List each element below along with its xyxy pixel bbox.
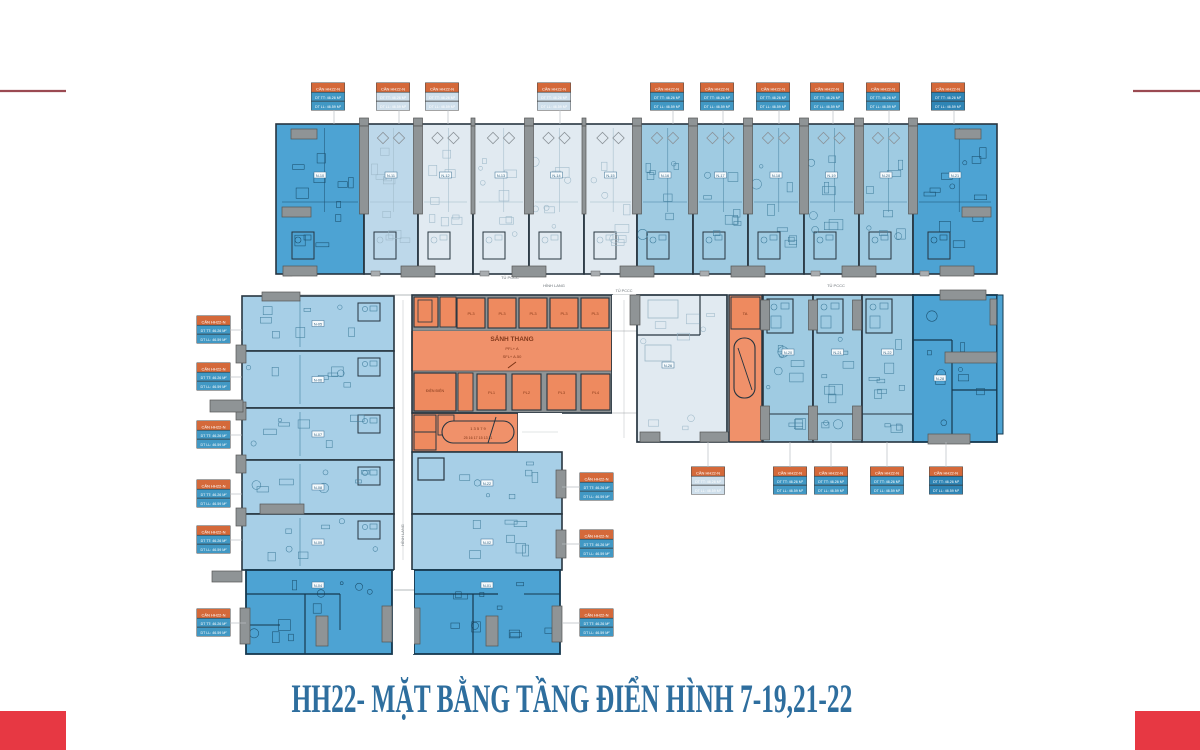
svg-text:DT LL: 46.59 M²: DT LL: 46.59 M² [584,631,611,635]
svg-text:DT TT: 46.26 M²: DT TT: 46.26 M² [201,376,228,380]
svg-text:DT TT: 46.26 M²: DT TT: 46.26 M² [201,434,228,438]
svg-text:DT TT: 46.26 M²: DT TT: 46.26 M² [429,96,456,100]
svg-text:N-19: N-19 [827,174,835,178]
svg-text:N-16: N-16 [661,174,669,178]
svg-text:DT LL: 46.59 M²: DT LL: 46.59 M² [760,105,787,109]
svg-text:DT TT: 46.26 M²: DT TT: 46.26 M² [201,622,228,626]
svg-text:PL3: PL3 [529,311,537,316]
svg-text:DT LL: 46.59 M²: DT LL: 46.59 M² [380,105,407,109]
svg-text:DT LL: 46.59 M²: DT LL: 46.59 M² [814,105,841,109]
svg-text:25 16 17 15 13 11: 25 16 17 15 13 11 [464,436,493,440]
svg-text:DT TT: 46.26 M²: DT TT: 46.26 M² [201,539,228,543]
svg-text:CĂN HH22-N: CĂN HH22-N [871,86,895,91]
svg-text:DT TT: 46.26 M²: DT TT: 46.26 M² [870,96,897,100]
svg-text:DT TT: 46.26 M²: DT TT: 46.26 M² [814,96,841,100]
svg-text:DT TT: 46.26 M²: DT TT: 46.26 M² [201,493,228,497]
svg-text:DT LL: 46.59 M²: DT LL: 46.59 M² [695,489,722,493]
svg-text:DT TT: 46.26 M²: DT TT: 46.26 M² [818,480,845,484]
svg-text:CĂN HH22-N: CĂN HH22-N [201,612,225,617]
svg-text:DT TT: 46.26 M²: DT TT: 46.26 M² [201,329,228,333]
svg-text:PL1: PL1 [488,390,496,395]
svg-text:DT LL: 46.59 M²: DT LL: 46.59 M² [933,489,960,493]
svg-text:CĂN HH22-N: CĂN HH22-N [819,470,843,475]
svg-text:HÌNH LANG: HÌNH LANG [400,524,405,546]
svg-text:DT TT: 46.26 M²: DT TT: 46.26 M² [541,96,568,100]
svg-text:DT LL: 46.59 M²: DT LL: 46.59 M² [429,105,456,109]
svg-text:DT TT: 46.26 M²: DT TT: 46.26 M² [760,96,787,100]
svg-text:DT TT: 46.26 M²: DT TT: 46.26 M² [777,480,804,484]
svg-text:DT LL: 46.59 M²: DT LL: 46.59 M² [704,105,731,109]
svg-text:HH22- MẶT BẰNG TẦNG ĐIỂN HÌNH: HH22- MẶT BẰNG TẦNG ĐIỂN HÌNH 7-19,21-22 [292,676,853,721]
svg-text:DT LL: 46.59 M²: DT LL: 46.59 M² [874,489,901,493]
svg-text:DT TT: 46.26 M²: DT TT: 46.26 M² [380,96,407,100]
svg-text:PL4: PL4 [592,390,600,395]
svg-text:CĂN HH22-N: CĂN HH22-N [542,86,566,91]
svg-text:SẢNH THANG: SẢNH THANG [490,334,533,343]
svg-text:N-14: N-14 [552,174,560,178]
svg-text:DT TT: 46.26 M²: DT TT: 46.26 M² [654,96,681,100]
svg-text:CĂN HH22-N: CĂN HH22-N [696,470,720,475]
svg-text:CĂN HH22-N: CĂN HH22-N [584,533,608,538]
svg-text:DT TT: 46.26 M²: DT TT: 46.26 M² [584,486,611,490]
svg-text:CĂN HH22-N: CĂN HH22-N [584,476,608,481]
svg-text:N-17: N-17 [716,174,724,178]
svg-text:N-11: N-11 [387,174,395,178]
svg-text:N-12: N-12 [441,174,449,178]
svg-text:CĂN HH22-N: CĂN HH22-N [381,86,405,91]
svg-text:PL3: PL3 [560,311,568,316]
svg-text:N-01: N-01 [483,584,491,588]
svg-text:N-05: N-05 [314,322,322,326]
svg-text:N-13: N-13 [497,174,505,178]
svg-text:CĂN HH22-N: CĂN HH22-N [705,86,729,91]
svg-text:N-18: N-18 [772,174,780,178]
svg-text:N-07: N-07 [314,433,322,437]
svg-text:DT LL: 46.59 M²: DT LL: 46.59 M² [201,385,228,389]
svg-text:DT LL: 46.59 M²: DT LL: 46.59 M² [777,489,804,493]
svg-text:N-21: N-21 [833,351,841,355]
svg-text:CĂN HH22-N: CĂN HH22-N [201,366,225,371]
svg-text:DT LL: 46.59 M²: DT LL: 46.59 M² [935,105,962,109]
svg-text:DT TT: 46.26 M²: DT TT: 46.26 M² [584,543,611,547]
svg-text:CĂN HH22-N: CĂN HH22-N [815,86,839,91]
svg-text:DT TT: 46.26 M²: DT TT: 46.26 M² [933,480,960,484]
svg-text:DT TT: 46.26 M²: DT TT: 46.26 M² [315,96,342,100]
svg-text:N-06: N-06 [314,378,322,382]
svg-text:CĂN HH22-N: CĂN HH22-N [655,86,679,91]
svg-text:N-21: N-21 [951,174,959,178]
svg-text:CĂN HH22-N: CĂN HH22-N [778,470,802,475]
svg-text:N-08: N-08 [314,486,322,490]
svg-text:N-22: N-22 [483,482,491,486]
svg-text:DT LL: 46.59 M²: DT LL: 46.59 M² [201,548,228,552]
svg-text:ĐIỆN ĐIỆN: ĐIỆN ĐIỆN [426,388,445,393]
svg-text:DT LL: 46.59 M²: DT LL: 46.59 M² [584,552,611,556]
svg-text:DT LL: 46.59 M²: DT LL: 46.59 M² [201,443,228,447]
svg-text:TA: TA [743,311,748,316]
svg-text:HÌNH LANG: HÌNH LANG [543,283,565,288]
svg-text:N-04: N-04 [314,584,322,588]
svg-text:DT LL: 46.59 M²: DT LL: 46.59 M² [315,105,342,109]
svg-text:1 3 5 7 9: 1 3 5 7 9 [470,426,486,431]
svg-text:DT LL: 46.59 M²: DT LL: 46.59 M² [201,631,228,635]
svg-text:DT TT: 46.26 M²: DT TT: 46.26 M² [874,480,901,484]
svg-text:PFL+ A: PFL+ A [505,346,519,351]
svg-text:TỦ PCCC: TỦ PCCC [616,288,633,293]
svg-text:PL3: PL3 [558,390,566,395]
svg-text:PL3: PL3 [591,311,599,316]
svg-text:DT LL: 46.59 M²: DT LL: 46.59 M² [201,338,228,342]
svg-text:DT LL: 46.59 M²: DT LL: 46.59 M² [201,502,228,506]
svg-text:N-09: N-09 [314,541,322,545]
svg-text:N-22: N-22 [883,351,891,355]
svg-text:SFL+ A.50: SFL+ A.50 [503,354,523,359]
svg-text:DT LL: 46.59 M²: DT LL: 46.59 M² [654,105,681,109]
svg-text:N-15: N-15 [606,174,614,178]
svg-text:N-02: N-02 [483,541,491,545]
svg-text:CĂN HH22-N: CĂN HH22-N [430,86,454,91]
svg-text:N-28: N-28 [936,377,944,381]
svg-text:CĂN HH22-N: CĂN HH22-N [201,483,225,488]
svg-text:N-26: N-26 [664,364,672,368]
svg-text:CĂN HH22-N: CĂN HH22-N [761,86,785,91]
svg-text:CĂN HH22-N: CĂN HH22-N [316,86,340,91]
svg-text:CĂN HH22-N: CĂN HH22-N [936,86,960,91]
svg-text:DT TT: 46.26 M²: DT TT: 46.26 M² [704,96,731,100]
svg-text:DT TT: 46.26 M²: DT TT: 46.26 M² [584,622,611,626]
svg-text:N-20: N-20 [882,174,890,178]
svg-text:CĂN HH22-N: CĂN HH22-N [584,612,608,617]
svg-text:DT LL: 46.59 M²: DT LL: 46.59 M² [541,105,568,109]
svg-text:PL2: PL2 [523,390,531,395]
svg-text:PL3: PL3 [467,311,475,316]
svg-text:CĂN HH22-N: CĂN HH22-N [201,319,225,324]
svg-text:CĂN HH22-N: CĂN HH22-N [201,424,225,429]
svg-text:DT LL: 46.59 M²: DT LL: 46.59 M² [584,495,611,499]
svg-text:DT LL: 46.59 M²: DT LL: 46.59 M² [870,105,897,109]
svg-text:N-20: N-20 [784,351,792,355]
svg-text:CĂN HH22-N: CĂN HH22-N [201,529,225,534]
svg-text:CĂN HH22-N: CĂN HH22-N [934,470,958,475]
svg-text:N-10: N-10 [316,174,324,178]
svg-text:DT TT: 46.26 M²: DT TT: 46.26 M² [935,96,962,100]
svg-text:TỦ PCCC: TỦ PCCC [827,283,845,288]
svg-text:DT TT: 46.26 M²: DT TT: 46.26 M² [695,480,722,484]
svg-text:CĂN HH22-N: CĂN HH22-N [875,470,899,475]
svg-text:PL3: PL3 [498,311,506,316]
svg-text:DT LL: 46.59 M²: DT LL: 46.59 M² [818,489,845,493]
